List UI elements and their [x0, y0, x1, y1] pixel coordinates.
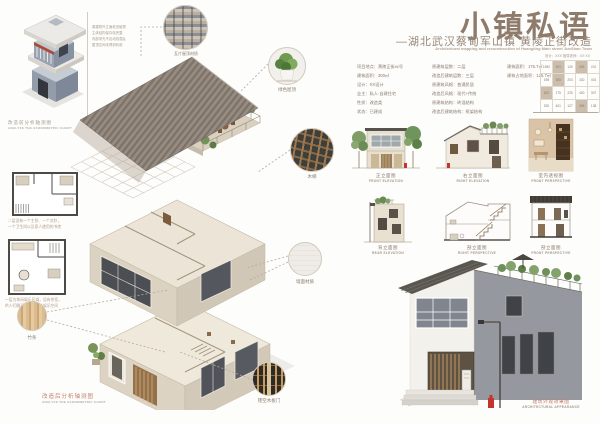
table-cell: 201: [552, 61, 564, 74]
project-info-column-1: 项目地点：黄陵正街xx号 建筑面积：300㎡ 设计：XX设计 业主：私人·自建住…: [357, 62, 431, 116]
plant-illustration: [269, 48, 305, 84]
wood-strips-material-photo: [17, 301, 47, 331]
info-row: 设计：XX设计: [357, 80, 431, 89]
info-row: 性质：改造类: [357, 98, 431, 107]
table-row: 302 175 225 400 307: [541, 87, 600, 100]
info-row: 改造后风格：现代+传统: [432, 89, 506, 98]
section-drawing-1: [440, 196, 514, 244]
front-elevation-caption: 正立面图 FRONT ELEVATION: [350, 173, 422, 183]
caption-en: ARCHITECTURAL APPEARANCE: [505, 405, 597, 409]
table-cell: 175: [552, 87, 564, 100]
table-cell: 401: [588, 74, 600, 87]
table-row: 205 401 127 305 138: [541, 100, 600, 113]
front-elevation-drawing: [350, 118, 422, 172]
interior-perspective-caption: 室内透视图 FRONT PERSPECTIVE: [520, 173, 582, 183]
table-cell: 400: [576, 87, 588, 100]
info-row: 原建筑层数：二层: [432, 62, 506, 71]
rear-elevation-drawing: [362, 192, 414, 246]
table-row: 198 305 203 330 401: [541, 74, 600, 87]
table-cell: 305: [552, 74, 564, 87]
area-number-table: 1950 201 130 401 201 198 305 203 330 401…: [540, 60, 600, 113]
roof-tiles-material-photo: [163, 5, 208, 50]
table-cell: 330: [576, 74, 588, 87]
project-info-column-2: 原建筑层数：二层 改造后建筑层数：三层 原建筑风格：普通民居 改造后风格：现代+…: [432, 62, 506, 116]
table-cell: 198: [541, 74, 553, 87]
table-cell: 307: [588, 87, 600, 100]
info-row: 状态：已建成: [357, 107, 431, 116]
table-cell: 1950: [541, 61, 553, 74]
info-row: 原建筑结构：砖混结构: [432, 98, 506, 107]
table-cell: 201: [588, 61, 600, 74]
right-elevation-drawing: [434, 118, 512, 172]
roof-tiles-label: 瓦片屋顶材质: [148, 52, 224, 57]
wall-material-photo: [288, 242, 322, 276]
lattice-door-label: 镂空木板门: [240, 398, 298, 403]
interior-perspective-drawing: [528, 118, 574, 172]
credits-line: 设计：XXX 指导老师：XX·XX: [545, 53, 590, 58]
exterior-render: [398, 252, 598, 408]
info-row: 业主：私人·自建住宅: [357, 89, 431, 98]
ladder-label: 木梯: [288, 174, 336, 179]
table-cell: 127: [564, 100, 576, 113]
info-row: 改造后建筑结构：框架结构: [432, 107, 506, 116]
table-cell: 225: [564, 87, 576, 100]
table-bottom-rule: [533, 112, 598, 113]
render-caption: 建筑外观效果图 ARCHITECTURAL APPEARANCE: [505, 398, 597, 409]
table-cell: 130: [564, 61, 576, 74]
info-row: 改造后建筑层数：三层: [432, 71, 506, 80]
wood-material-label: 竹条: [12, 335, 52, 340]
wooden-ladder-photo: [290, 128, 334, 172]
table-cell: 401: [576, 61, 588, 74]
info-row: 原建筑风格：普通民居: [432, 80, 506, 89]
section-drawing-2: [526, 192, 576, 246]
green-roof-label: 绿色屋顶: [258, 87, 316, 92]
table-cell: 138: [588, 100, 600, 113]
info-row: 项目地点：黄陵正街xx号: [357, 62, 431, 71]
caption-en: RIGHT ELEVATION: [434, 179, 512, 183]
table-row: 1950 201 130 401 201: [541, 61, 600, 74]
caption-en: FRONT PERSPECTIVE: [520, 179, 582, 183]
table-cell: 203: [564, 74, 576, 87]
table-cell: 401: [552, 100, 564, 113]
caption-en: FRONT ELEVATION: [350, 179, 422, 183]
table-cell: 302: [541, 87, 553, 100]
table-cell: 305: [576, 100, 588, 113]
right-elevation-caption: 右立面图 RIGHT ELEVATION: [434, 173, 512, 183]
green-roof-plant-photo: [268, 47, 306, 85]
caption-zh: 建筑外观效果图: [505, 398, 597, 405]
poster-board: 原建筑外立面老旧破损 主体结构保存较完整 内部采光不足动线混乱 屋顶空间未得到利…: [0, 0, 600, 424]
renovated-building-exploded-axonometric: [55, 50, 345, 410]
note-line: 屋顶空间未得到利用: [92, 42, 136, 48]
old-building-notes: 原建筑外立面老旧破损 主体结构保存较完整 内部采光不足动线混乱 屋顶空间未得到利…: [92, 24, 136, 48]
info-row: 建筑面积：300㎡: [357, 71, 431, 80]
wall-material-label: 墙面材质: [281, 279, 329, 284]
table-cell: 205: [541, 100, 553, 113]
poster-subtitle-en: Architectural mapping and reconstruction…: [435, 46, 592, 51]
lattice-door-photo: [252, 362, 286, 396]
